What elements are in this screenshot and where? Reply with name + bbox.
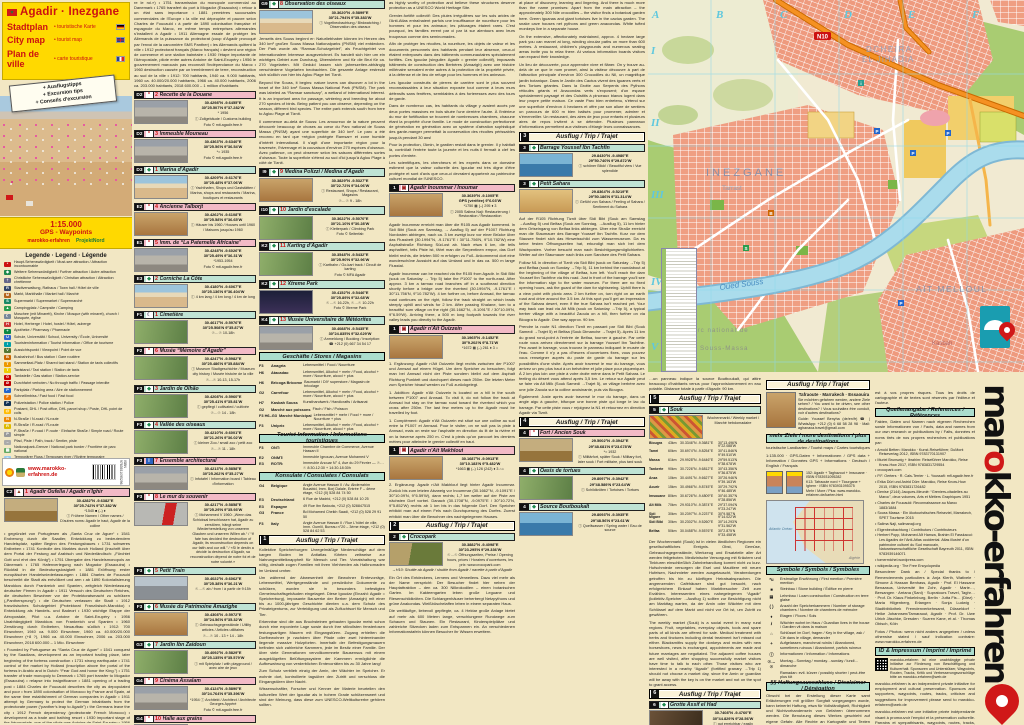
legend-label: R-Straße / R-road / R-route [14,424,59,428]
poi-photo [134,356,188,380]
reference-item: • Denise (2144) Jacques-Meunié: “Grenier… [875,490,975,499]
poi-photo [389,542,443,566]
symbol-row: ⓘInformationen / Information / Informati… [766,652,870,658]
poi-info: 30.4208°N -9.5960°E30°25.41'N 9°35.81'Wⓘ… [190,394,256,418]
souk-place: Aït Milk [649,504,666,512]
symbol-row: ▤Lehmbau / Loam construction / Construct… [766,594,870,603]
poi-photo [519,189,573,213]
grid-reference: 4 [520,468,529,475]
gps-coords: 29°50.186'N 9°31.314'W [575,194,645,199]
poi-card-body: 29.8093°N -9.3935°E29°48.56'N 9°23.61'Wⓘ… [519,512,645,536]
symbol-label: Anzahl der Speicherkammern / Number of s… [780,604,870,613]
trip-number: 4 [521,418,529,426]
legend-label: Moschee (mit Minarett), Kirche / Mosque … [14,313,128,321]
grid-reference: E3 [135,276,144,283]
souk-row: Sidi Migare30km30.2397°N -9.2237°E30°9.5… [649,513,761,521]
legend-item: FSchnellimbiss / Fast food / Fast food [4,395,128,400]
poi-note: ⓘ Zollgebäude / Customs building [190,117,256,122]
legend-symbol-icon: N [4,417,11,422]
legend-label: Supermarkt / Supermarket / Supermarché [14,300,82,304]
poi-number: 11 [280,243,286,249]
city-map: A B C D E F I II III IV V N10 P P P P i … [648,0,1024,372]
brand-wordmark: marokko-erfahren [976,384,1016,684]
qr-code-icon [875,658,888,671]
flag-decoration [26,201,33,206]
trip-section-header: 6Ausflug / Trip / Trajet [649,689,761,699]
poi-photo [134,394,188,418]
paragraph: Il commence au-delà de Souss: Les amoure… [259,119,385,166]
poi-photo [259,216,313,240]
sub-de: • touristische Karte [54,24,113,30]
symbol-label: Ramadan: evtl. kürzer / possibly shorter… [780,671,870,680]
poi-card-header: F3i7Ensemble architectural [134,457,256,466]
wordmark-o: o [976,450,1016,470]
poi-card: 6◆Grotte Assif el Had30.7408°N -9.4760°E… [649,701,761,725]
souk-table: Biougra43km30.3346°N -9.3681°E30°13.496'… [649,442,761,538]
poi-note: ⓘ Vogelbeobachtung / Birdwatching / Obse… [315,21,385,30]
legend-label: Apotheke / Pharmacy / Pharmacie [14,329,70,333]
category-icon: * [146,678,154,685]
grid-reference: F3 [259,521,269,534]
grid-reference: 1 [390,185,399,192]
svg-text:P: P [875,129,878,134]
poi-photo [134,502,188,526]
gps-coords: GPS (vérifiée) 9°6.03'W [445,198,515,203]
poi-card-body: 30.3620°N -9.5899°E30°21.794'N 9°35.383'… [259,10,385,34]
gps-coords: 30°2.875'N 9°33.458'W [718,530,754,538]
poi-number: 7 [155,458,158,464]
poi-card: E2*4Ancienne Talborjt30.4262°N -9.6108°E… [134,203,256,237]
section-header: Konsulate / Consulates / Consulats [259,472,385,481]
poi-info: 30.3622°N -9.5070°E30°21.10'N 9°30.28'Wⓘ… [315,216,385,240]
gps-coords: 30.4491°N -9.6627°E [680,477,716,485]
label-ait-melloul: AÏT MELLOUL [916,284,988,294]
place-description: Baumarkt / DIY superstore / Magasin de b… [304,380,385,389]
poi-photo [389,193,443,217]
scale-box: 1:15.000 GPS - Waypoints marokko-erfahre… [0,217,132,249]
gps-coords: 30.2397°N -9.2237°E [680,513,716,521]
poi-note: ⓘ Kartbahn / Go-kart track / Circuit de … [315,263,385,272]
category-icon: * [146,204,154,211]
poi-title: Petit Train [160,568,185,574]
grid-reference: F3 [135,494,144,501]
legend-item: iTouristeninformation / Tourist informat… [4,342,128,347]
poi-photo [134,100,188,124]
place-name: Kasbah Souss [271,400,301,405]
gps-coords: 30°44.829'N 9°28.56'W [705,716,761,721]
legend-label: Schnellimbiss / Fast food / Fast food [14,395,73,399]
category-icon: ◆ [271,243,279,250]
grid-reference: D2 [135,131,144,138]
poi-note: ⓘ 4 km lang / 4 km long / 4 km de long [190,295,256,300]
poi-card: F1☾1Cimetière30.4617°N -9.5976°E30°25.50… [134,311,256,345]
poi-note: ⓘ Schildkröten / Tortoises / Tortues [575,488,645,493]
section-title: §§ Haftungsausschluss / Disclaimer / Dén… [769,680,867,692]
gps-coords: 29°48.681'N 9°23.678'W [575,444,645,449]
poi-card-body: 30.1687°N -9.0913°E30°10.183'N 9°5.482'W… [389,456,515,480]
poi-info: 30.4217°N -9.5858°E30°25.29'N 9°35.93'Wⓘ… [190,502,256,564]
poi-card-body: 30.4210°N -9.6001°E30°21.26'N 9°36.02'Wⓘ… [134,430,256,454]
poi-number: 5 [155,240,158,246]
symbol-label: Lehmbau / Loam construction / Constructi… [780,594,870,603]
poi-number: 8 [280,1,283,7]
poi-card-body: 30.3622°N -9.5070°E30°21.10'N 9°30.28'Wⓘ… [259,216,385,240]
poi-title: Jardin de Olhão [160,386,199,392]
poi-photo [134,248,188,272]
legend-item: BBusbahnhof / Bus station / Gare routièr… [4,355,128,360]
poi-card: G3◆7Jardin Ibn Zaidoun30.4092°N -9.5829°… [134,641,256,675]
table-row: G2CarrefourLebensmittel, Alkohol + mehr … [259,390,385,399]
legend-item: PParkplatz / Parking area / Aire de stat… [4,388,128,393]
legend-symbol-icon: + [4,329,11,334]
poi-note: ☉…☉ 10 - 13 + 14 - 18h [190,634,256,639]
gps-coords: 30°24.764'N 9°35.396'W [190,691,256,696]
poi-card-header: F3*8Le mur du souvenir [134,493,256,502]
symbol-glyph: ⌂ [766,631,777,640]
poi-card-body: 30.4262°N -9.6108°E30°25.58'N 9°36.65'Wⓘ… [134,212,256,236]
paragraph: Follow N1 in direction of Tiznit via Sid… [519,260,645,322]
gps-coords: 30°13.496'N 9°22.088'W [718,442,754,450]
poi-note: ⓘ Restaurant, Shops / Restaurant, Magasi… [315,189,385,198]
place-description: Immeuble Chambre de Commerce, Avenue Has… [303,445,385,454]
french-flag-icon [116,56,125,62]
category-icon: ▣ [401,326,409,333]
poi-note: Foto © mit.agadir.free.fr [190,265,256,270]
gps-coords: 30°43.356'N 9°36.875'W [718,468,754,476]
cover-caption: 152: Agadir + Taghazout + Imsouane · ISB… [806,471,870,480]
paragraph-block: Der Wochenmarkt (Souk) ist in vielen län… [649,539,761,687]
poi-card-body: 30.4282°N -9.6382°E30°25.742'N 9°37.382'… [4,498,130,529]
poi-card-body: 30.4298°N -9.6455°E30°25.507'N 9°37.282'… [134,100,256,127]
table-row: F3 H6–G3Marché MunicipalLebensmittel + m… [259,413,385,422]
legend-symbol-icon: H [4,322,11,327]
place-description: Immeuble Ignouan, Avenue Mohamed V [303,455,385,460]
place-name: ROTR: [271,461,301,470]
symbol-label: Steinbau / Stone building / Édifice en p… [780,587,870,592]
souk-distance: 61km [668,459,678,467]
grid-reference: E3 [259,497,269,502]
poi-title: Ancienne Talborjt [160,204,204,210]
legend: Legende · Legend · Légende *Haupt-Sehens… [2,252,130,456]
poi-card-header: C2▲1Agadir Oufella / Agadir n'Ighir [4,488,130,497]
map-sheet: { "header": { "title": "Agadir · Inezgan… [0,0,1024,725]
grid-reference: I10 [260,207,269,214]
legend-item: RStadtverwaltung, Rathaus / Town hall / … [4,286,128,291]
poi-photo [649,710,703,725]
poi-photo [134,466,188,490]
section-header: §§ Haftungsausschluss / Disclaimer / Dén… [766,682,870,691]
legend-item: USchule, Universität / School, Universit… [4,335,128,340]
brand-pin-large-icon [985,684,1019,724]
poi-title: Agadir Inoummar / Inoumar [410,185,478,191]
trip-section-header: 4Ausflug / Trip / Trajet [519,417,645,427]
poi-info: 30.4282°N -9.6382°E30°25.742'N 9°37.382'… [60,498,130,529]
gps-coords: 30°25.56'N 9°36.54'W [190,144,256,149]
morocco-index-map: Atlantic OcéanAlgérie [766,500,864,564]
poi-note: ⓘ Frühere Namen / Other names / D'autres… [60,514,130,528]
poi-card: 1▣Agadir Inoummar / Inoumar30.3639°N -9.… [389,184,515,220]
reference-item: • Eigenbeobachtung / Contributors / Cont… [875,528,975,533]
paragraph: as highly worthy of protection and belie… [389,0,515,10]
paragraph: On the extensive, affectionately maintai… [519,34,645,60]
grid-reference: F3 [135,568,144,575]
poi-card-header: 5◆Souk [649,406,761,415]
map-cover-thumb [786,471,803,494]
section-title: Geschäfte / Stores / Magasins [262,354,382,360]
paragraph: Fotos / Photos: wenn nicht anders angege… [875,629,975,645]
poi-card-body: 30.4247°N -9.5982°E30°25.486'N 9°35.884'… [134,356,256,382]
beach-photo [0,96,132,216]
grid-reference: G4 [259,483,269,496]
legend-item: TTaxistand / Taxi station / Station de t… [4,368,128,373]
trip-title: Ausflug / Trip / Trajet [401,522,514,529]
poi-card: C2▲1Agadir Oufella / Agadir n'Ighir30.42… [4,488,130,528]
poi-info: 29.8430°N -9.4980°E29°50.740'N 9°29.872'… [575,153,645,177]
poi-card-body: 30.4617°N -9.5976°E30°25.508'N 9°35.87'W… [134,320,256,344]
gps-coords: 30°25.58'N 9°36.65'W [190,217,256,222]
section-header: Symbole / Symbols / Symboles [766,566,870,575]
symbol-glyph: *u [766,577,777,586]
paragraph-block: est à vos propres risques. Tous les droi… [875,390,975,406]
reference-item: • Muriel Brunswig + Ibrahim: Reiseführer… [875,458,975,467]
grid-reference: 1 [390,447,399,454]
grid-letter: B [715,9,723,21]
category-icon: ◆ [401,534,409,541]
gps-coords: 30°25.29'N 9°35.93'W [190,507,256,512]
trip-title: Ausflug / Trip / Trajet [531,419,644,426]
poi-note: Foto © mit.agadir.free.fr [190,123,256,128]
legend-item: +Apotheke / Pharmacy / Pharmacie [4,329,128,334]
poi-photo [519,476,573,500]
poi-info: 29.5002°N -9.3942°E29°48.681'N 9°23.678'… [575,438,645,464]
category-icon: * [146,240,154,247]
poi-card: K2◆12Xtreme Park30.4152°N -9.5446°E30°25… [259,280,385,314]
poi-card: 4◆Oasis de tortues29.8097°N -9.3942°E29°… [519,467,645,501]
grid-reference: F3 H6–G3 [259,413,277,422]
poi-photo [259,252,313,276]
poi-card-header: K2◆12Xtreme Park [259,280,385,289]
poi-note: Foto © mit.agadir.free.fr [190,708,256,713]
paragraph: 1. Ergänzung: Agadir n'Ait Ouizzein lieg… [389,361,515,387]
paragraph-block: • gegründet von Portugiesen als „Santa C… [4,531,130,723]
legend-label: Hotel, Herberge / Hotel, hostel / Hôtel,… [14,323,91,327]
poi-title: Petit Sahara [540,181,570,187]
grid-reference: D2 [135,92,144,99]
grid-reference: E3 [259,461,269,470]
grid-reference: 4 [520,504,529,511]
poi-card-header: F3◆4Vallée des oiseaux [134,421,256,430]
reference-item: • tomermichel.wordpress.com [875,558,975,563]
column-city-pois: re le roi.») • 1751 transmission du mono… [134,0,256,725]
gps-coords: 30°25.742'N 9°37.382'W [60,503,130,508]
paragraph: at place of discovery, learning and ling… [519,0,645,31]
souk-place: Massa [649,459,666,467]
poi-card: G4*9Cinéma Assalam30.4124°N -9.5890°E30°… [134,677,256,713]
legend-label: Postamt, DHL / Post office, DHL parcel s… [14,408,128,416]
cover-caption: Mehr / More / Plus: www.marokko-erfahren… [806,489,870,498]
gps-coords: 29°59.513'N 9°38.678'W [718,459,754,467]
svg-text:P: P [899,301,902,306]
section-header: Geschäfte / Stores / Magasins [259,352,385,361]
category-icon: ◆ [531,145,539,152]
poi-number: 8 [155,494,158,500]
grid-letter: F [971,9,980,21]
poi-info: 30.4124°N -9.5890°E30°24.764'N 9°35.396'… [190,686,256,712]
legend-item: VAussichtspunkt / Viewpoint / Point de v… [4,348,128,353]
souk-row: Imsouane80km30.6726°N -9.4809°E30°40.357… [649,495,761,503]
symbol-row: ♦Etagen / Floors / Sols [766,614,870,619]
reference-item: • Erika Düri und Astrid Dürr: Marokko, R… [875,480,975,489]
souk-place: Tamri [649,450,666,458]
paragraph-block: Obwohl bei der Erstellung dieser Karte s… [766,693,870,725]
poi-note: *1750 ▦ (–) 295 ♦ 3 [445,204,515,209]
poi-card: 1▣Agadir n'Ait Ouizzein30.1965°N -9.1452… [389,325,515,359]
poi-note: ⓘ Mohammed V 1960: „Wenn das Schicksal b… [190,513,256,564]
gps-coords: 30°25.49'N 9°36.31'W [190,253,256,258]
poi-title: Musée du Patrimoine Amazighe [160,604,238,610]
grid-reference: 5 [650,407,659,414]
poi-card: 5◆SoukWochenmarkt / Weekly market / Marc… [649,406,761,440]
paragraph: Zum Schutz verblieb einzig der Amin, der… [259,668,385,684]
category-icon: ◆ [271,1,279,8]
place-name: Carrefour [271,390,301,399]
poi-note: ☉…☉ ab / from / à partir de 9:15h [190,587,256,592]
poi-title: Medina Polizzi / Medina d'Agadir [285,169,365,175]
category-icon: ◆ [271,169,279,176]
poi-info: 30.4247°N -9.5982°E30°25.486'N 9°35.884'… [190,356,256,382]
publisher-strip: www.marokko-erfahren.de ISBN 97839310952… [2,458,130,486]
grid-reference: G4 [135,716,144,723]
symbol-glyph: ⅈ [766,621,777,630]
label-kasbah: Kasbah [932,341,952,347]
poi-card-header: I9◆9Medina Polizzi / Medina d'Agadir [259,168,385,177]
poi-card-body: Wochenmarkt / Weekly market / Marché heb… [649,415,761,439]
section-header: ID & Impressum / Imprint / Imprimé [875,647,975,656]
flag-decoration [6,195,13,200]
qr-text: marokko-erfahren ist eine unabhängige pr… [890,658,975,680]
symbol-glyph: ☉…☉ [766,659,777,669]
category-icon: ◆ [146,604,154,611]
isbn-number: ISBN 9783931095296 [119,460,127,485]
wordmark-part: mar [976,384,1016,450]
paragraph: Un lieu de découverte, pour apprendre vi… [519,62,645,129]
poi-title: Karting d'Agadir [287,243,327,249]
section-title: Quellenangabe / References / Références [878,407,972,419]
page-title: Agadir · Inezgane [20,6,119,18]
gps-coords: 30.6726°N -9.4809°E [680,495,716,503]
legend-label: Schule, Universität / School, University… [14,336,108,340]
section-header: Tourist-Information / Informations touri… [259,434,385,443]
poi-info: 30.4213°N -9.5858°E30°25.262'N 9°35.27'W… [190,466,256,490]
poi-note: Wochenmarkt / Weekly market / Marché heb… [705,416,761,425]
souk-distance: 90km [668,468,678,476]
label-dcheira: DCHEIRA [866,45,913,54]
reference-item: • Souss Massa · Ein ökotouristisches Rei… [875,511,975,520]
category-icon: ◆ [661,702,669,709]
category-icon: ☾ [146,312,154,319]
souk-distance: 70km [668,504,678,512]
place-name: Anagria [271,363,301,368]
place-description: 49 Rue Ibn Batouta, +212 (0) 528847515 [303,504,385,509]
label-tarrast: Tarrast [722,185,742,192]
paragraph-block: touristische Landkarten / Tourist maps /… [766,445,870,468]
poi-title: Corniche La Côte [160,276,203,282]
poi-note: ⓘ Gefühl von Sahara / Feeling of Sahara … [575,200,645,209]
masthead-row-fr: Plan de ville • carte touristique [7,49,125,69]
uk-flag-icon [116,37,125,43]
poi-card-body: 30.4152°N -9.5446°E30°25.89'N 9°32.68'W☉… [259,290,385,314]
legend-items: *Haupt-Sehenswürdigkeit / Must-see attra… [4,261,128,467]
gps-coords: 30.4966°N -9.8745°E [680,486,716,494]
poi-card-header: 4◆Oasis de tortues [519,467,645,476]
poi-card-body: 30.4209°N -9.6176°E30°25.48'N 9°37.06'Wⓘ… [134,175,256,200]
paragraph: Afin de protéger les récoltes, la nourri… [389,41,515,77]
brand-marokko-erfahren: marokko-erfahren [27,238,70,244]
legend-symbol-icon: F [4,395,11,400]
table-row: E3ROTR:Immeuble Anouar N° 4, Ave du 29 F… [259,461,385,470]
grid-reference: F3 [259,423,269,432]
sub-en: • tourist map [54,37,113,43]
trip-section-header: 3Ausflug / Trip / Trajet [519,132,645,142]
paragraph-block: Besonderer Dank an / Special thanks to /… [875,569,975,644]
poi-card-body: 29.8430°N -9.4980°E29°50.740'N 9°29.872'… [519,153,645,177]
legend-label: Parkplatz / Parking area / Aire de stati… [14,389,92,393]
gps-coords: 30°21.794'N 9°35.383'W [315,15,385,20]
poi-note: Foto © mit.agadir.free.fr [190,156,256,161]
paragraph: 1. Addition: Agadir n'Ait Ouizzein is lo… [389,390,515,416]
category-icon: ◆ [271,281,279,288]
symbol-label: Erstmalige Erwähnung / First mention / P… [780,577,870,586]
poi-footnote: →H10: Shuttle ab Agadir / shuttle from A… [389,568,515,572]
paragraph: Wissenschaftler, Forscher und Kenner der… [259,686,385,707]
guide-question: Sie möchten gefahren werden, andere Ziel… [798,398,870,416]
guide-text: Tafraoute · Marrakech · EssaouiraSie möc… [798,392,870,433]
grid-reference: 6 [650,702,659,709]
poi-title: Xtreme Park [288,281,318,287]
reference-item: • crocopark.com [875,468,975,473]
column-trips-3-4: at place of discovery, learning and ling… [519,0,645,725]
poi-title: Vallée des oiseaux [160,422,206,428]
grid-reference: K2 [260,243,269,250]
poi-number: 6 [155,348,158,354]
reference-item: • Arnold Betten: Marokko · Kunst-Reisefü… [875,448,975,457]
symbol-label: Informationen / Information / Informatio… [780,652,870,658]
paragraph: Les Igoudar construits de pierres de car… [389,80,515,101]
label-souss-massa: Souss-Massa [700,345,748,352]
trip-title: Ausflug / Trip / Trajet [531,133,644,140]
poi-note: ⓘ Quellwasser / Spring water / Eau de so… [575,524,645,533]
poi-note: ☉…☉ Öffnungszeiten, Preise / Opening hou… [445,553,515,567]
paragraph: re le roi.») • 1751 transmission du mono… [134,0,256,88]
poi-title: Halle aux grains [163,716,203,722]
table-row: F3ItalyAngle Avenue Hassan II / Rue L'hô… [259,521,385,534]
poi-card: F3◆6Musée du Patrimoine Amazighe30.4308°… [134,603,256,639]
poi-photo [519,153,573,177]
category-icon: ▣ [401,447,409,454]
poi-info: 30.4152°N -9.5446°E30°25.89'N 9°32.68'W☉… [315,290,385,314]
grid-reference: G4 [135,678,144,685]
gps-coords: 30°41.846'N 9°49.510'W [718,450,754,458]
poi-note: ⓘ Kletterpark / Climbing Park [315,227,385,232]
grid-reference: K2 [260,281,269,288]
symbol-glyph: + [766,641,777,650]
poi-card: F3◆5Petit Train30.4022°N -9.6062°E30°25.… [134,567,256,601]
place-description: Angle Avenue Hassan II / Rue L'hôtel de … [303,521,385,534]
legend-item: NN-Straße / N-road / N-route [4,417,128,422]
poi-number: 4 [155,204,158,210]
poi-card-header: D2*3Immeuble Mouneau [134,130,256,139]
poi-info: 29.8097°N -9.3942°E29°48.589'N 9°23.64'W… [575,476,645,500]
